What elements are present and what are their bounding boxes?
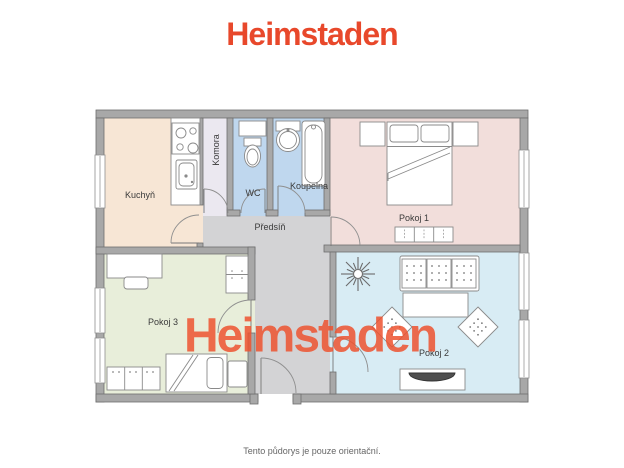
kitchen-sink-icon [176,160,197,189]
label-kuchyn: Kuchyň [125,190,155,200]
toilet-icon [244,138,261,167]
label-wc: WC [246,188,261,198]
desk-chair-icon [124,277,148,289]
wc-shelf [239,121,266,136]
wall-kuchyn-pokoj3 [96,247,255,254]
wall-bottom-left [96,394,258,402]
wall-hall-top-2 [266,210,278,216]
dresser-pokoj1 [395,227,453,242]
wall-kuchyn-stub [197,243,203,247]
wall-bottom-right [293,394,528,402]
wardrobe-icon [226,256,248,293]
desk-icon [107,254,162,278]
label-koupelna: Koupelna [290,181,328,191]
window-pokoj2-1 [519,253,529,310]
wall-hall-top-1 [227,210,240,216]
floor-plan-drawing [0,0,624,468]
entrance-jamb-right [293,394,301,404]
wall-komora-wc [227,118,233,210]
plant-icon [341,257,375,291]
wall-pokoj2-hall-bottom [330,372,336,394]
label-predsin: Předsíň [254,222,285,232]
bathtub-icon [302,121,325,186]
window-kuchyn [95,155,105,208]
heimstaden-watermark: Heimstaden [184,309,436,364]
wall-pokoj1-pokoj2 [324,245,520,252]
wall-top [96,110,528,118]
wall-wc-koupelna [267,118,273,210]
label-pokoj1: Pokoj 1 [399,213,429,223]
double-bed-icon [387,122,452,205]
wall-pokoj3-hall-top [248,247,255,300]
nightstand-right [453,122,478,146]
dresser-pokoj3 [107,367,160,390]
window-pokoj3-2 [95,338,105,383]
window-pokoj3-1 [95,288,105,333]
nightstand-pokoj3 [228,361,247,387]
wall-hall-top-3 [305,210,330,216]
sofa-icon [400,256,479,291]
label-komora: Komora [211,134,221,166]
nightstand-left [360,122,385,146]
label-pokoj3: Pokoj 3 [148,317,178,327]
washbasin-icon [276,121,300,152]
floor-plan-page: Heimstaden [0,0,624,468]
window-pokoj2-2 [519,320,529,378]
tv-icon [400,369,465,390]
entrance-jamb-left [250,394,258,404]
disclaimer-text: Tento půdorys je pouze orientační. [0,446,624,456]
stove-icon [172,123,199,154]
window-pokoj1 [519,150,529,208]
